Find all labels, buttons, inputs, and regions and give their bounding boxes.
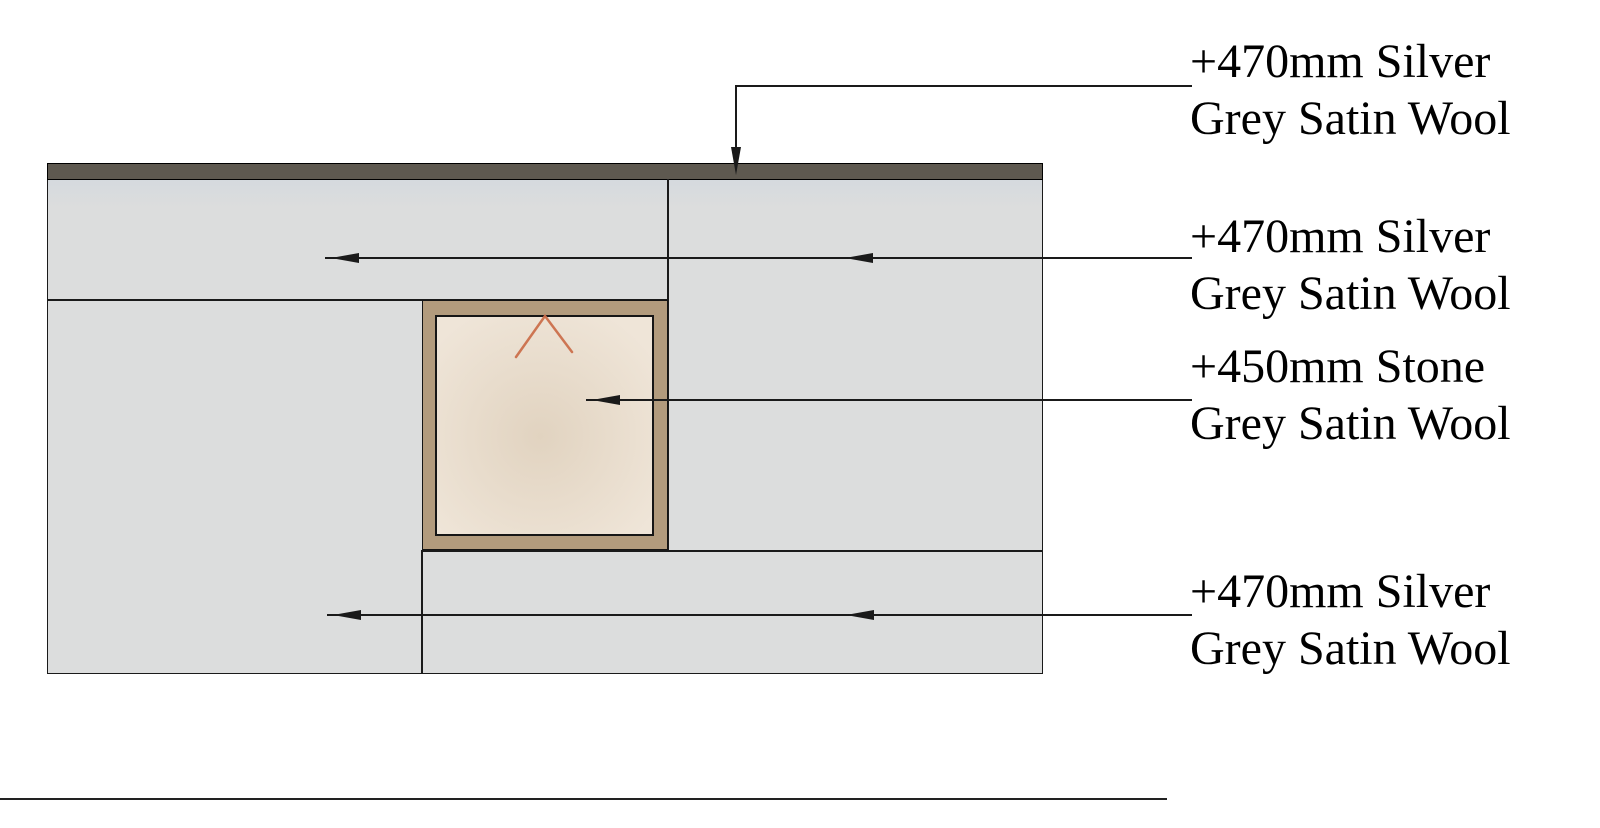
leader-top-horizontal — [736, 85, 1192, 87]
leader-top-vertical — [735, 85, 737, 147]
annotation-line: +470mm Silver — [1190, 208, 1550, 265]
annotation-line: Grey Satin Wool — [1190, 395, 1550, 452]
arrowhead-left-icon — [592, 395, 620, 405]
panel-joint-vertical-lower — [421, 550, 423, 674]
grain-chevron-icon — [505, 310, 585, 362]
leader-lower-horizontal — [327, 614, 1192, 616]
annotation-upper-wool: +470mm Silver Grey Satin Wool — [1190, 208, 1550, 322]
annotation-line: +470mm Silver — [1190, 33, 1550, 90]
arrowhead-down-icon — [731, 147, 741, 175]
annotation-line: Grey Satin Wool — [1190, 90, 1550, 147]
detail-drawing-canvas: +470mm Silver Grey Satin Wool +470mm Sil… — [0, 0, 1600, 828]
arrowhead-left-icon — [333, 610, 361, 620]
leader-upper-horizontal — [325, 257, 1192, 259]
page-rule-line — [0, 798, 1167, 800]
arrowhead-left-icon — [846, 610, 874, 620]
annotation-top-capping: +470mm Silver Grey Satin Wool — [1190, 33, 1550, 147]
annotation-lower-wool: +470mm Silver Grey Satin Wool — [1190, 563, 1550, 677]
annotation-line: Grey Satin Wool — [1190, 265, 1550, 322]
leader-stone-horizontal — [586, 399, 1192, 401]
annotation-stone: +450mm Stone Grey Satin Wool — [1190, 338, 1550, 452]
panel-joint-horizontal-lower — [422, 550, 1042, 552]
annotation-line: Grey Satin Wool — [1190, 620, 1550, 677]
annotation-line: +450mm Stone — [1190, 338, 1550, 395]
arrowhead-left-icon — [331, 253, 359, 263]
annotation-line: +470mm Silver — [1190, 563, 1550, 620]
arrowhead-left-icon — [845, 253, 873, 263]
capping-strip — [47, 163, 1043, 180]
